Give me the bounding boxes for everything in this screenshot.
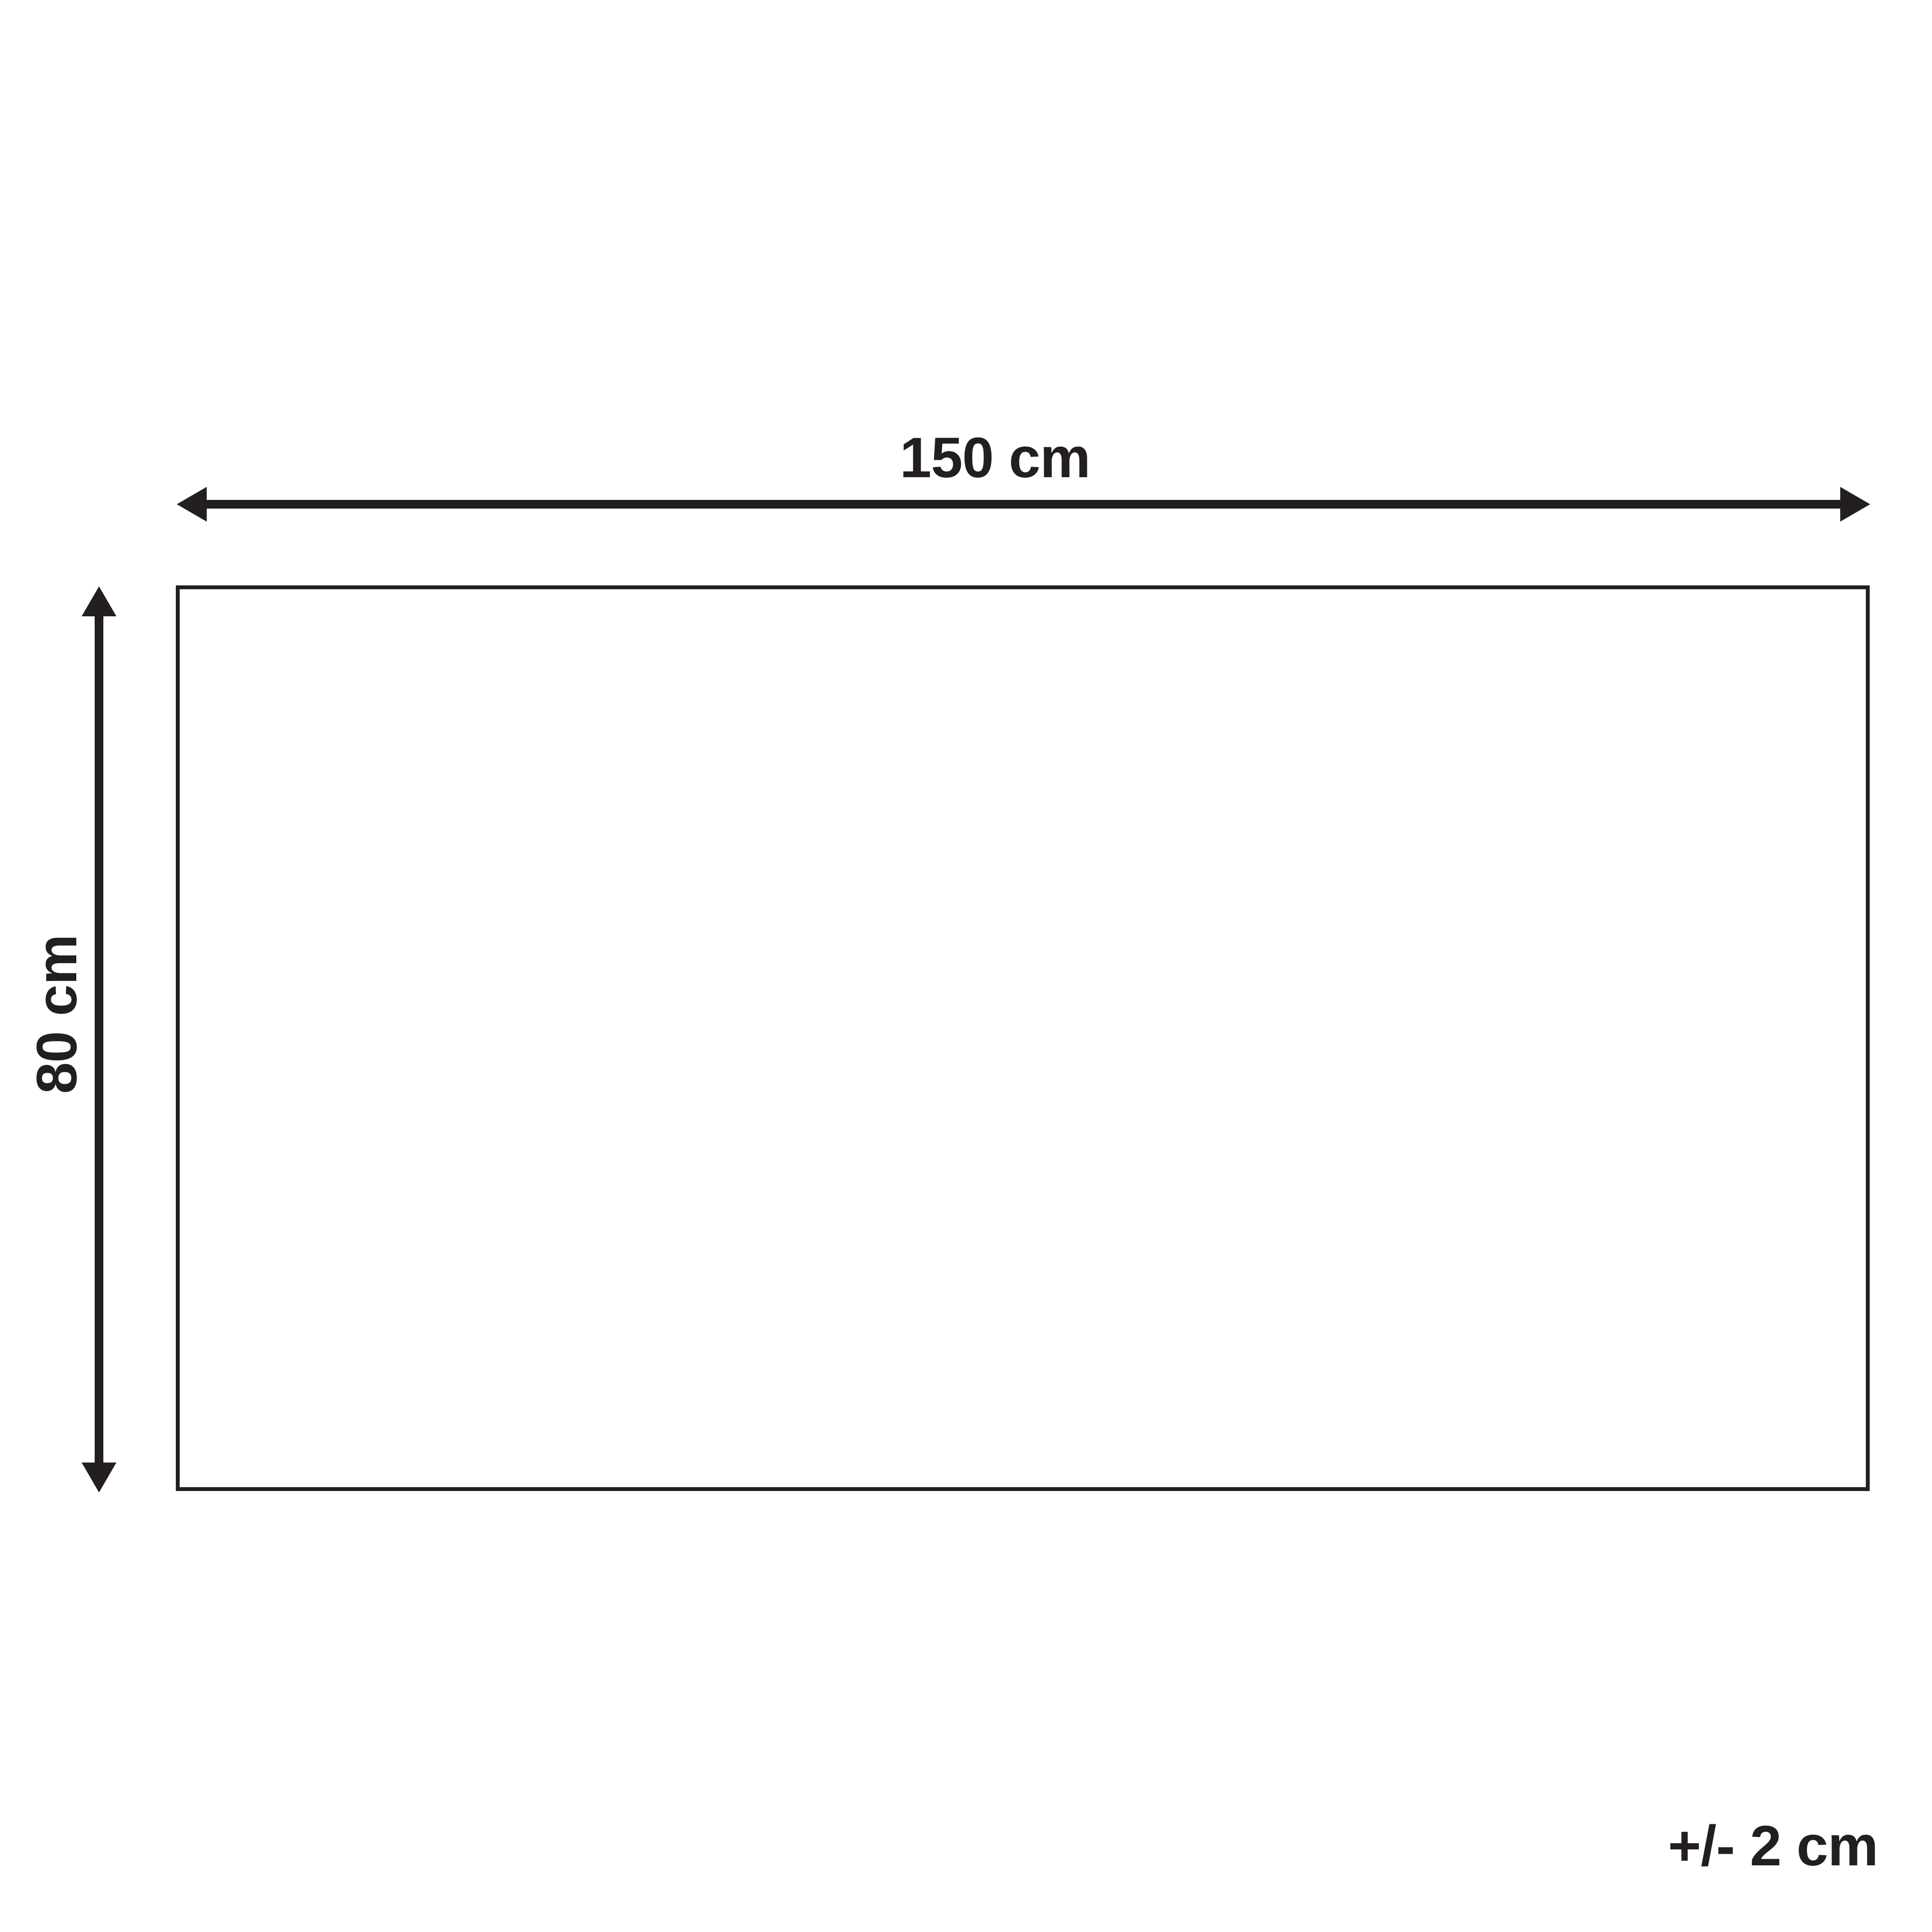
- tolerance-label: +/- 2 cm: [1668, 1817, 1878, 1875]
- product-outline-rectangle: [176, 585, 1870, 1491]
- height-arrow-line: [95, 610, 103, 1467]
- height-dimension-label: 80 cm: [23, 724, 91, 1304]
- dimension-diagram: 150 cm 80 cm +/- 2 cm: [0, 0, 1932, 1932]
- arrow-right-icon: [1840, 487, 1870, 522]
- arrow-down-icon: [82, 1463, 116, 1492]
- width-dimension-label: 150 cm: [705, 429, 1285, 487]
- width-arrow-line: [200, 500, 1843, 509]
